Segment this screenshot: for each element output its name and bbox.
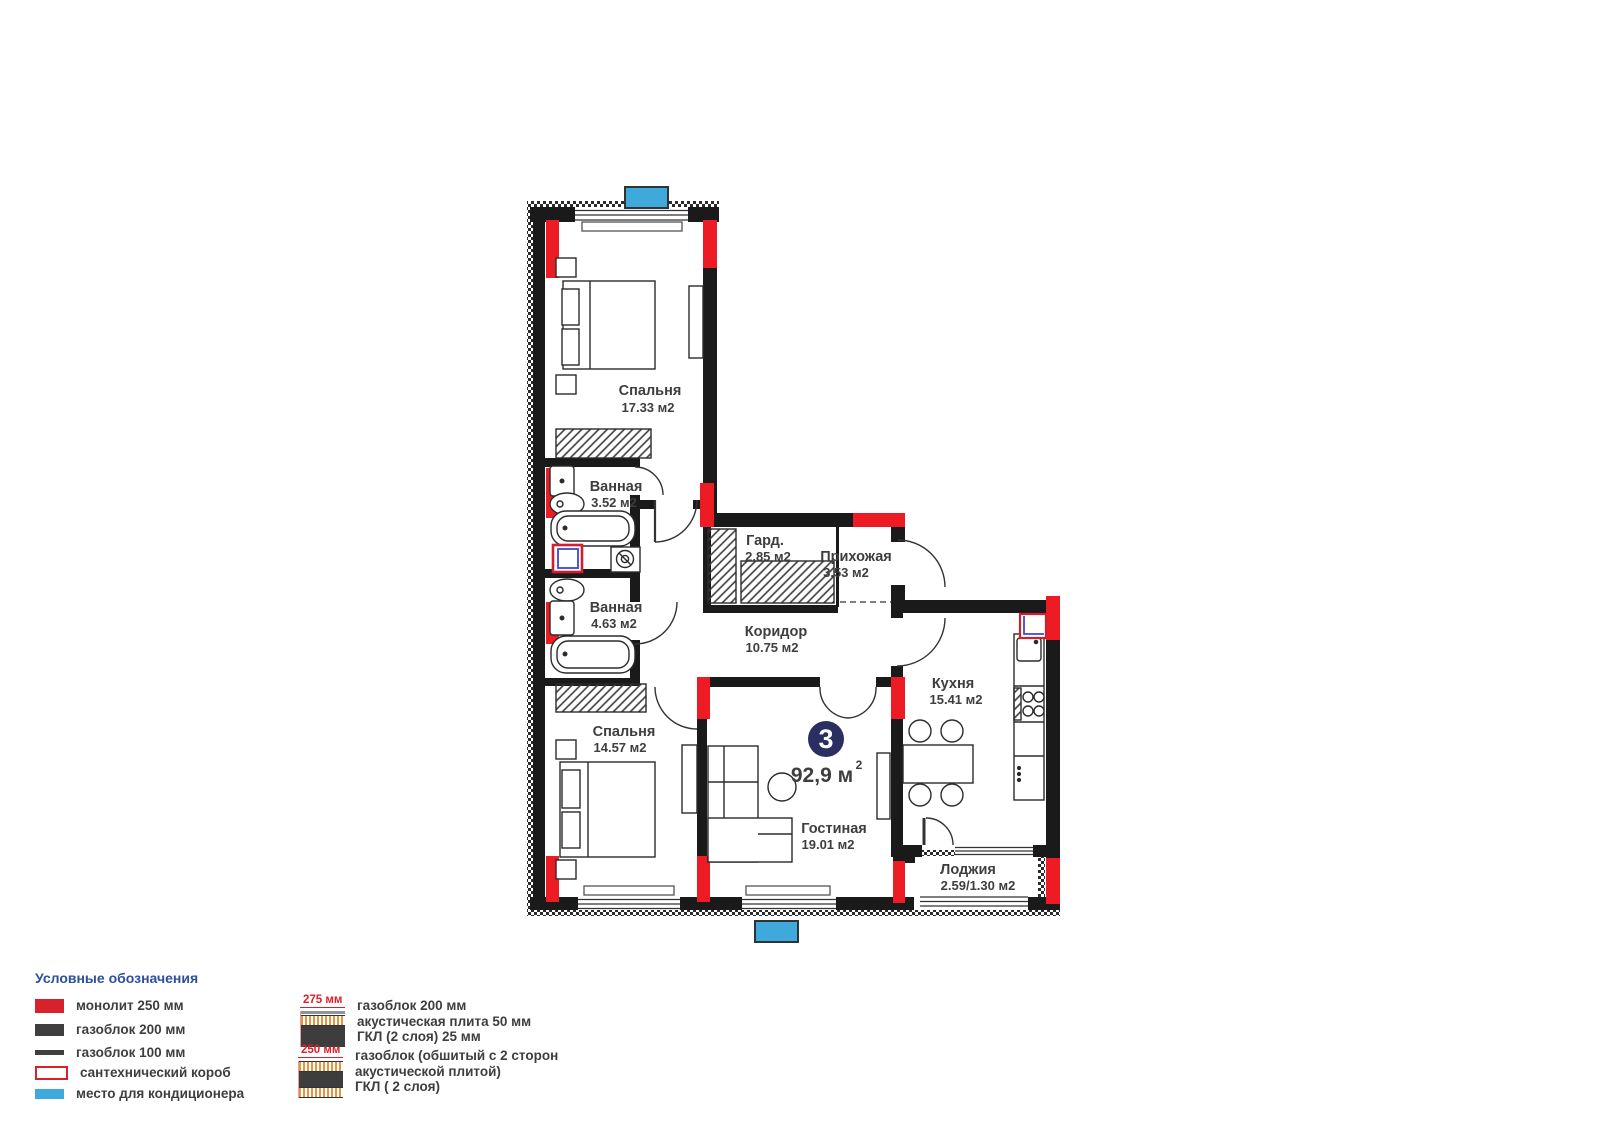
gasblock-200-swatch	[35, 1024, 64, 1036]
wall-section-250-thickness: 250 мм	[298, 1044, 343, 1058]
window-living-room-bottom	[742, 886, 836, 909]
floor-plan-page: Спальня 17.33 м2 Ванная 3.52 м2 Ванная 4…	[0, 0, 1600, 1131]
svg-text:Лоджия: Лоджия	[940, 862, 996, 878]
bedroom-1-furniture	[556, 258, 703, 458]
room-label-hall: Прихожая 3.53 м2	[820, 549, 892, 580]
door-entrance	[898, 540, 945, 587]
svg-text:17.33 м2: 17.33 м2	[622, 400, 675, 415]
ac-place-swatch	[35, 1089, 64, 1099]
legend-item-gasblock-200: газоблок 200 мм	[35, 1022, 185, 1037]
gasblock-100-swatch	[35, 1050, 64, 1055]
svg-text:Спальня: Спальня	[593, 724, 656, 740]
ac-unit-bottom	[755, 921, 798, 942]
door-bedroom-1	[655, 500, 697, 542]
svg-text:4.63 м2: 4.63 м2	[591, 616, 637, 631]
svg-text:15.41 м2: 15.41 м2	[930, 692, 983, 707]
svg-text:3.52 м2: 3.52 м2	[591, 495, 637, 510]
badge-area-sup: 2	[856, 758, 863, 772]
kitchen-plumbing-box	[1020, 614, 1046, 638]
ac-unit-top	[625, 187, 668, 208]
svg-text:Спальня: Спальня	[619, 383, 682, 399]
svg-text:Ванная: Ванная	[590, 600, 643, 616]
svg-text:19.01 м2: 19.01 м2	[802, 837, 855, 852]
room-label-kitchen: Кухня 15.41 м2	[930, 676, 983, 707]
door-bedroom-2	[655, 687, 697, 729]
legend-item-monolith: монолит 250 мм	[35, 998, 184, 1013]
window-kitchen-loggia	[955, 845, 1033, 857]
room-label-loggia: Лоджия 2.59/1.30 м2	[940, 862, 1015, 893]
plumbing-box	[553, 545, 582, 572]
door-kitchen	[897, 618, 945, 666]
svg-text:Гостиная: Гостиная	[801, 821, 867, 837]
svg-text:3.53 м2: 3.53 м2	[823, 565, 869, 580]
svg-text:14.57 м2: 14.57 м2	[594, 740, 647, 755]
svg-text:Коридор: Коридор	[745, 624, 808, 640]
plumbing-box-swatch	[35, 1066, 68, 1080]
door-balcony	[924, 818, 953, 845]
room-label-bathroom-2: Ванная 4.63 м2	[590, 600, 643, 631]
legend-item-ac-place: место для кондиционера	[35, 1086, 244, 1101]
room-label-corridor: Коридор 10.75 м2	[745, 624, 808, 655]
legend-item-gasblock-100: газоблок 100 мм	[35, 1045, 185, 1060]
window-bedroom-2-bottom	[578, 886, 680, 909]
bedroom-2-furniture	[556, 684, 697, 879]
washing-machine	[611, 547, 640, 572]
floor-plan: Спальня 17.33 м2 Ванная 3.52 м2 Ванная 4…	[520, 165, 1080, 950]
apartment-badge: 3 92,9 м 2	[791, 721, 863, 787]
wall-section-250-text: газоблок (обшитый с 2 сторон акустическо…	[355, 1048, 615, 1095]
badge-area: 92,9 м	[791, 764, 853, 787]
legend-title: Условные обозначения	[35, 970, 198, 986]
svg-text:Ванная: Ванная	[590, 479, 643, 495]
svg-text:Кухня: Кухня	[932, 676, 974, 692]
room-label-wardrobe: Гард. 2.85 м2	[745, 533, 791, 564]
room-label-bathroom-1: Ванная 3.52 м2	[590, 479, 643, 510]
legend-item-plumbing-box: сантехнический короб	[35, 1065, 231, 1080]
room-label-living-room: Гостиная 19.01 м2	[801, 821, 867, 852]
wall-section-275: 275 мм газоблок 200 мм акустическая плит…	[300, 990, 345, 1047]
wall-section-275-text: газоблок 200 мм акустическая плита 50 мм…	[357, 998, 617, 1045]
window-loggia-bottom	[920, 895, 1028, 908]
kitchen-furniture	[903, 614, 1046, 806]
monolith-swatch	[35, 999, 64, 1013]
svg-text:Прихожая: Прихожая	[820, 549, 892, 565]
svg-text:Гард.: Гард.	[746, 533, 784, 549]
room-label-bedroom-2: Спальня 14.57 м2	[593, 724, 656, 755]
svg-text:2.85 м2: 2.85 м2	[745, 549, 791, 564]
svg-text:10.75 м2: 10.75 м2	[746, 640, 799, 655]
wall-section-250: 250 мм газоблок (обшитый с 2 сторон акус…	[298, 1040, 343, 1098]
window-bedroom-1-top	[575, 211, 688, 232]
wall-section-275-thickness: 275 мм	[300, 994, 345, 1008]
svg-text:2.59/1.30 м2: 2.59/1.30 м2	[941, 878, 1016, 893]
door-living-room-double	[820, 687, 876, 718]
room-label-bedroom-1: Спальня 17.33 м2	[619, 383, 682, 415]
badge-number: 3	[818, 724, 833, 754]
wall-section-250-diagram	[298, 1061, 343, 1098]
